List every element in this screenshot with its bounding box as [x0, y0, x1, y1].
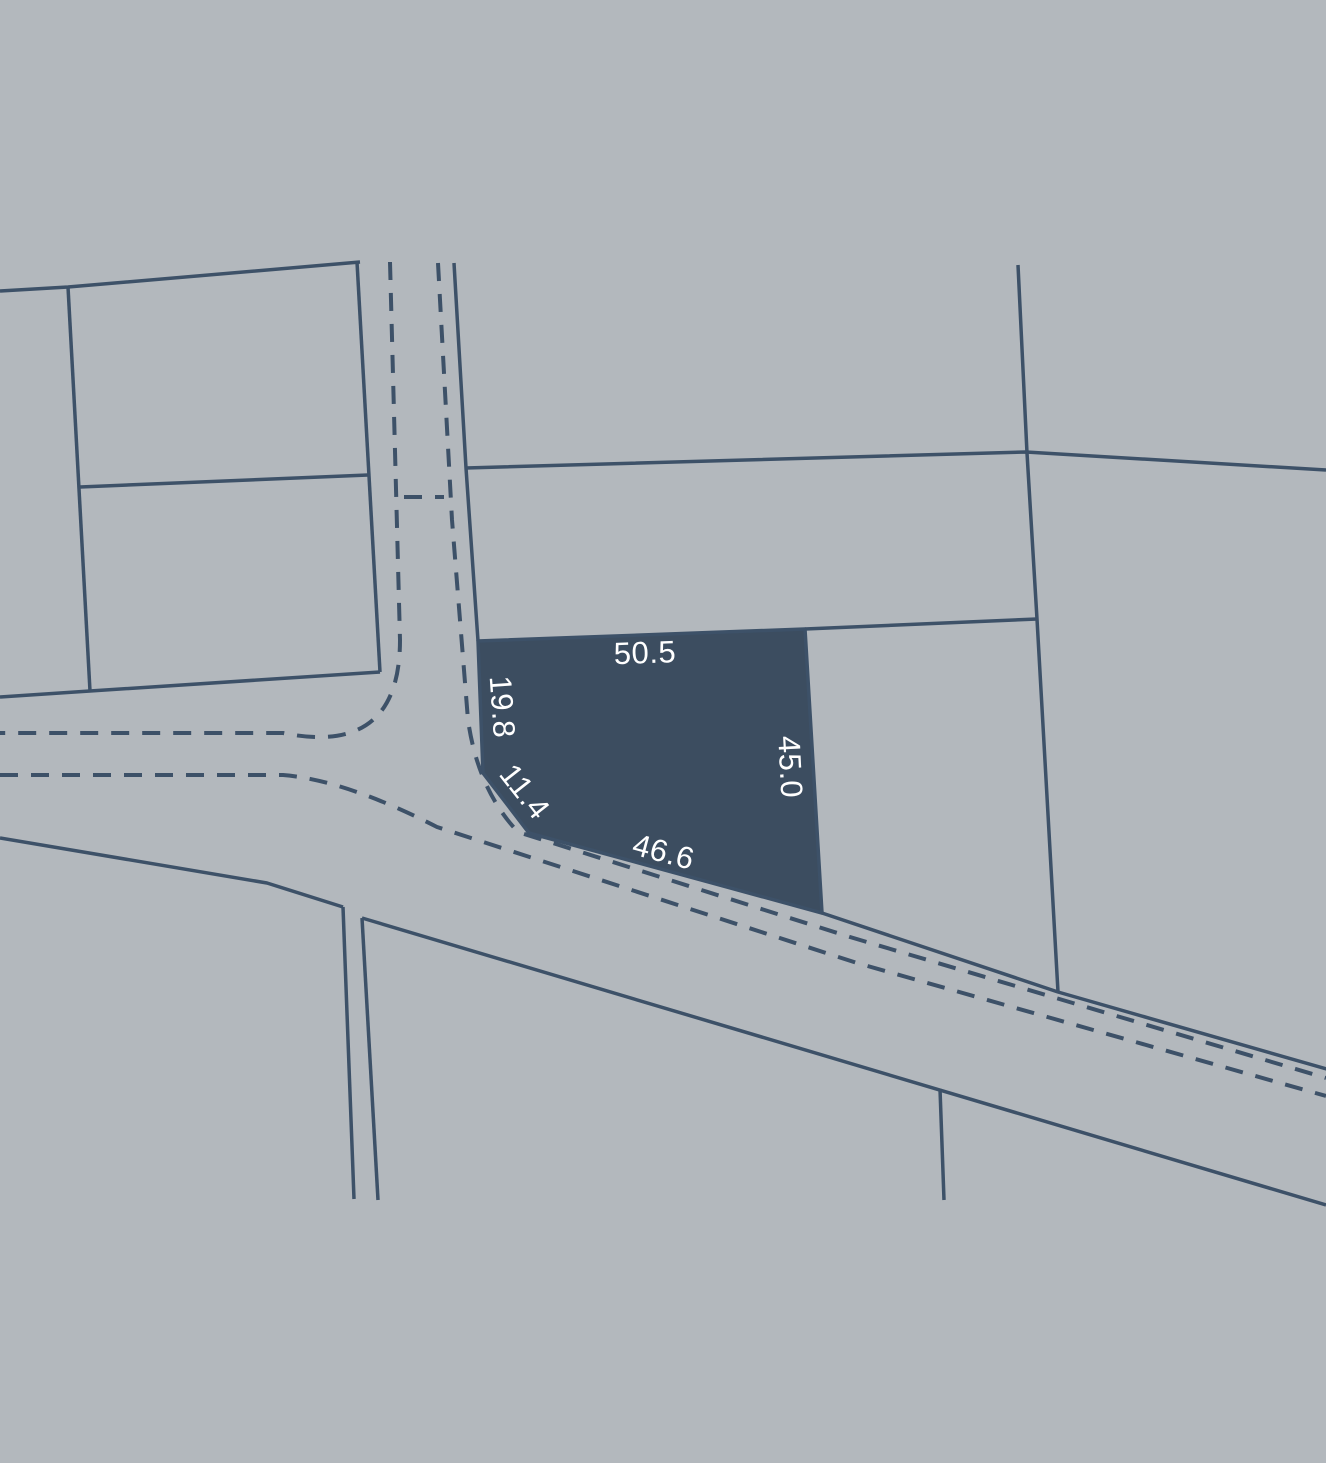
map-canvas: 50.519.811.445.046.6	[0, 0, 1326, 1463]
dimension-label-right: 45.0	[771, 735, 809, 799]
cadastral-map: 50.519.811.445.046.6	[0, 0, 1326, 1463]
dimension-label-top: 50.5	[613, 634, 677, 671]
dimension-label-left: 19.8	[483, 675, 522, 740]
